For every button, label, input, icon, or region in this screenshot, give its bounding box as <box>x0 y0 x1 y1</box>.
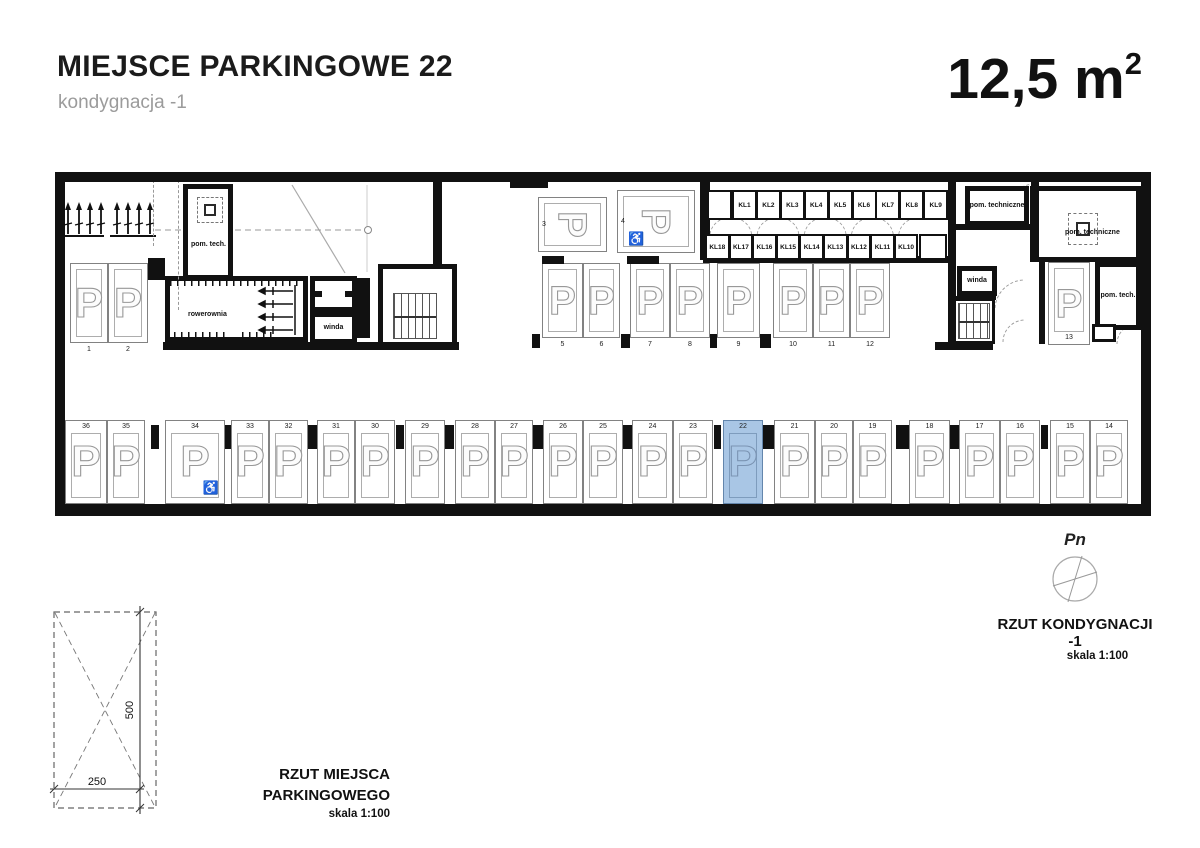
locker-KL14: KL14 <box>799 234 824 260</box>
parking-space-number: 16 <box>1001 423 1039 430</box>
parking-p-icon: P <box>854 421 891 503</box>
parking-space-number: 9 <box>718 341 759 348</box>
parking-p-icon: P <box>774 264 812 337</box>
parking-p-icon: P <box>775 421 814 503</box>
parking-p-icon: P <box>66 421 106 503</box>
parking-space-29: P29 <box>405 420 445 504</box>
parking-space-4: P4♿ <box>617 190 695 253</box>
pillar <box>1041 425 1048 449</box>
area-exponent: 2 <box>1125 46 1142 81</box>
parking-detail-drawing: 500 250 <box>40 598 180 833</box>
parking-p-icon: P <box>71 264 107 342</box>
room-label: pom. techniczne <box>970 202 1025 210</box>
parking-space-number: 3 <box>542 221 546 228</box>
locker-KL5: KL5 <box>828 190 853 220</box>
room-pom-tech-right: pom. tech. <box>1095 262 1141 330</box>
pillar <box>950 425 959 449</box>
wall <box>355 278 370 338</box>
parking-p-icon: P <box>718 264 759 337</box>
parking-p-icon: P <box>584 421 622 503</box>
parking-space-10: P10 <box>773 263 813 338</box>
parking-space-number: 10 <box>774 341 812 348</box>
parking-space-32: P32 <box>269 420 308 504</box>
parking-space-number: 13 <box>1049 334 1089 341</box>
parking-p-icon: P <box>674 421 712 503</box>
parking-space-27: P27 <box>495 420 533 504</box>
parking-space-number: 31 <box>318 423 354 430</box>
parking-space-number: 15 <box>1051 423 1089 430</box>
dim-width-label: 250 <box>88 776 106 788</box>
parking-space-number: 27 <box>496 423 532 430</box>
pillar <box>308 425 317 449</box>
wall <box>948 296 996 300</box>
locker-KL8: KL8 <box>899 190 924 220</box>
parking-space-34: P34♿ <box>165 420 225 504</box>
parking-space-14: P14 <box>1090 420 1128 504</box>
parking-space-7: P7 <box>630 263 670 338</box>
parking-space-30: P30 <box>355 420 395 504</box>
compass-caption-scale: skala 1:100 <box>990 650 1160 662</box>
parking-p-icon: P <box>546 191 599 258</box>
parking-space-number: 29 <box>406 423 444 430</box>
parking-space-18: P18 <box>909 420 950 504</box>
parking-space-3: P3 <box>538 197 607 252</box>
parking-p-icon: P <box>1051 421 1089 503</box>
parking-p-icon: P <box>631 264 669 337</box>
pillar <box>623 425 632 449</box>
parking-space-2: P2 <box>108 263 148 343</box>
parking-space-6: P6 <box>583 263 620 338</box>
room-label: pom. tech. <box>1100 292 1135 300</box>
wheelchair-icon: ♿ <box>628 232 644 245</box>
wall <box>55 172 65 516</box>
parking-p-icon: P <box>109 264 147 342</box>
detail-caption-scale: skala 1:100 <box>183 806 390 822</box>
detail-caption-title: RZUT MIEJSCA PARKINGOWEGO <box>183 764 390 806</box>
locker-KL3: KL3 <box>780 190 805 220</box>
pillar <box>396 425 404 449</box>
parking-space-1: P1 <box>70 263 108 343</box>
parking-space-number: 4 <box>621 218 625 225</box>
room-label: winda <box>967 277 987 285</box>
grid-line <box>153 180 154 246</box>
wall <box>935 342 993 350</box>
parking-space-number: 2 <box>109 346 147 353</box>
parking-space-number: 1 <box>71 346 107 353</box>
parking-space-8: P8 <box>670 263 710 338</box>
parking-space-15: P15 <box>1050 420 1090 504</box>
parking-space-9: P9 <box>717 263 760 338</box>
locker-KL1: KL1 <box>732 190 757 220</box>
wall <box>55 172 1151 182</box>
parking-space-number: 21 <box>775 423 814 430</box>
grid-line <box>178 180 179 310</box>
locker-KL17: KL17 <box>729 234 754 260</box>
room-rowerownia: rowerownia <box>165 276 308 342</box>
parking-p-icon: P <box>633 421 672 503</box>
parking-space-number: 18 <box>910 423 949 430</box>
parking-p-icon: P <box>584 264 619 337</box>
locker-KL2: KL2 <box>756 190 781 220</box>
wall <box>55 504 1151 516</box>
pillar <box>533 425 543 449</box>
stair-treads <box>393 293 437 339</box>
wall <box>955 224 1031 230</box>
wall <box>148 258 165 280</box>
pillar <box>710 334 717 348</box>
pillar <box>714 425 721 449</box>
locker-KL16: KL16 <box>752 234 777 260</box>
parking-space-number: 25 <box>584 423 622 430</box>
parking-space-28: P28 <box>455 420 495 504</box>
staircase-left <box>378 264 457 348</box>
room-pom-tech-left: pom. tech. <box>183 184 233 280</box>
locker-KL7: KL7 <box>875 190 900 220</box>
page: MIEJSCE PARKINGOWE 22 kondygnacja -1 12,… <box>0 0 1200 848</box>
parking-space-26: P26 <box>543 420 583 504</box>
locker-KL13: KL13 <box>823 234 848 260</box>
locker-KL9: KL9 <box>923 190 948 220</box>
parking-p-icon: P <box>724 421 762 503</box>
parking-space-12: P12 <box>850 263 890 338</box>
pillar <box>445 425 454 449</box>
compass-icon <box>1050 554 1100 604</box>
parking-p-icon: P <box>816 421 852 503</box>
parking-space-number: 6 <box>584 341 619 348</box>
bike-rack-icon <box>62 198 158 242</box>
page-subtitle: kondygnacja -1 <box>58 92 187 114</box>
parking-space-number: 19 <box>854 423 891 430</box>
parking-space-number: 32 <box>270 423 307 430</box>
parking-space-number: 26 <box>544 423 582 430</box>
parking-p-icon: P <box>543 264 582 337</box>
bike-rack-icon <box>249 283 301 337</box>
room-label: rowerownia <box>188 311 227 319</box>
parking-space-22: P22 <box>723 420 763 504</box>
stair-treads <box>958 303 990 339</box>
parking-space-17: P17 <box>959 420 1000 504</box>
parking-p-icon: P <box>232 421 268 503</box>
parking-space-11: P11 <box>813 263 850 338</box>
parking-space-36: P36 <box>65 420 107 504</box>
wall <box>1031 180 1039 260</box>
parking-space-number: 7 <box>631 341 669 348</box>
parking-space-16: P16 <box>1000 420 1040 504</box>
parking-p-icon: P <box>960 421 999 503</box>
parking-space-number: 28 <box>456 423 494 430</box>
parking-space-5: P5 <box>542 263 583 338</box>
compass: Pn RZUT KONDYGNACJI -1 skala 1:100 <box>990 530 1160 604</box>
parking-space-21: P21 <box>774 420 815 504</box>
floor-plan: pom. tech. rowerownia winda <box>55 172 1151 516</box>
parking-space-20: P20 <box>815 420 853 504</box>
page-title: MIEJSCE PARKINGOWE 22 <box>57 50 453 84</box>
parking-p-icon: P <box>626 184 687 260</box>
compass-caption-title: RZUT KONDYGNACJI -1 <box>990 616 1160 650</box>
room-winda-left: winda <box>310 312 357 344</box>
parking-space-number: 24 <box>633 423 672 430</box>
parking-space-number: 11 <box>814 341 849 348</box>
room-label: pom. techniczne <box>1065 229 1120 237</box>
bike-wall-hatch <box>174 332 229 337</box>
wall <box>948 180 956 344</box>
parking-space-33: P33 <box>231 420 269 504</box>
parking-p-icon: P <box>1049 263 1089 344</box>
parking-p-icon: P <box>814 264 849 337</box>
parking-space-number: 14 <box>1091 423 1127 430</box>
area-number: 12,5 m <box>947 47 1124 111</box>
pillar <box>760 334 771 348</box>
north-label: Pn <box>990 530 1160 550</box>
wall <box>510 172 548 188</box>
parking-p-icon: P <box>496 421 532 503</box>
room-label: pom. tech. <box>191 241 226 249</box>
room-pom-techniczne-top: pom. techniczne <box>965 186 1029 226</box>
room-pom-techniczne-right: pom. techniczne <box>1030 186 1141 262</box>
parking-space-number: 35 <box>108 423 144 430</box>
locker-KL6: KL6 <box>852 190 877 220</box>
wall <box>433 180 442 264</box>
parking-p-icon: P <box>1091 421 1127 503</box>
parking-space-number: 8 <box>671 341 709 348</box>
pillar <box>621 334 630 348</box>
pillar <box>896 425 909 449</box>
parking-space-number: 23 <box>674 423 712 430</box>
detail-caption: RZUT MIEJSCA PARKINGOWEGO skala 1:100 <box>183 764 390 822</box>
parking-space-13: P13 <box>1048 262 1090 345</box>
parking-p-icon: P <box>671 264 709 337</box>
pillar <box>225 425 231 449</box>
locker-KL10: KL10 <box>894 234 919 260</box>
locker-KL12: KL12 <box>847 234 872 260</box>
room-winda-right: winda <box>957 266 997 296</box>
parking-space-number: 5 <box>543 341 582 348</box>
parking-p-icon: P <box>356 421 394 503</box>
pillar <box>151 425 159 449</box>
parking-space-19: P19 <box>853 420 892 504</box>
wall <box>1039 260 1045 344</box>
area-value: 12,5 m2 <box>947 46 1142 112</box>
locker-KL4: KL4 <box>804 190 829 220</box>
parking-space-number: 17 <box>960 423 999 430</box>
locker-empty <box>707 190 732 220</box>
compass-caption: RZUT KONDYGNACJI -1 skala 1:100 <box>990 616 1160 662</box>
pillar <box>532 334 540 348</box>
parking-p-icon: P <box>406 421 444 503</box>
locker-empty <box>919 234 947 260</box>
parking-p-icon: P <box>456 421 494 503</box>
shaft-icon <box>197 197 223 223</box>
pillar <box>763 425 774 449</box>
locker-KL15: KL15 <box>776 234 801 260</box>
parking-space-number: 33 <box>232 423 268 430</box>
parking-space-25: P25 <box>583 420 623 504</box>
parking-p-icon: P <box>544 421 582 503</box>
parking-space-35: P35 <box>107 420 145 504</box>
parking-p-icon: P <box>851 264 889 337</box>
parking-space-23: P23 <box>673 420 713 504</box>
parking-p-icon: P <box>270 421 307 503</box>
parking-space-number: 30 <box>356 423 394 430</box>
room-label: winda <box>324 324 344 332</box>
wheelchair-icon: ♿ <box>203 481 219 494</box>
parking-space-number: 20 <box>816 423 852 430</box>
room-elevator-shaft-left <box>310 276 357 312</box>
parking-space-number: 34 <box>166 423 224 430</box>
parking-p-icon: P <box>910 421 949 503</box>
parking-space-number: 22 <box>724 423 762 430</box>
locker-KL18: KL18 <box>705 234 730 260</box>
wall <box>163 342 459 350</box>
dim-height-label: 500 <box>124 701 136 719</box>
parking-space-31: P31 <box>317 420 355 504</box>
parking-p-icon: P <box>108 421 144 503</box>
parking-p-icon: P <box>318 421 354 503</box>
small-box <box>1092 324 1116 342</box>
parking-space-number: 12 <box>851 341 889 348</box>
wall <box>1141 172 1151 516</box>
parking-space-24: P24 <box>632 420 673 504</box>
parking-p-icon: P <box>1001 421 1039 503</box>
parking-space-number: 36 <box>66 423 106 430</box>
staircase-right <box>953 298 995 344</box>
locker-KL11: KL11 <box>870 234 895 260</box>
